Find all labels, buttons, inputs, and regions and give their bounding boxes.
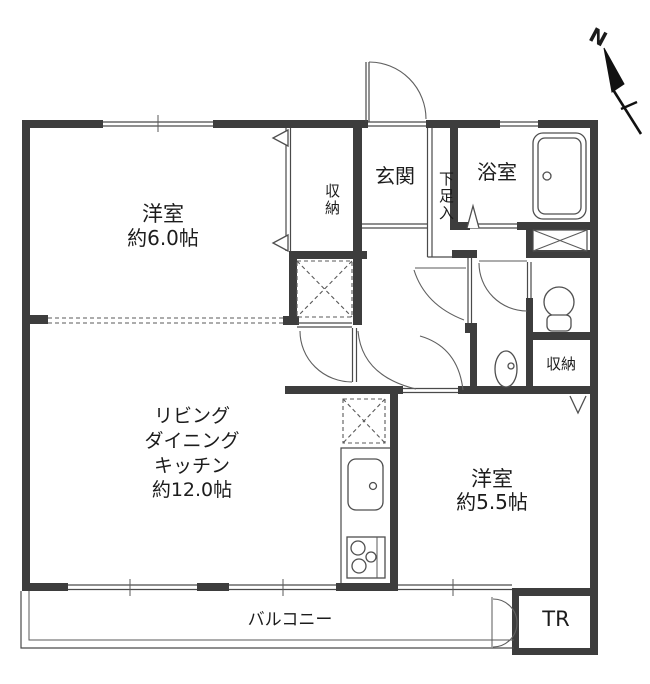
- entrance-step: [362, 224, 427, 228]
- toilet: [544, 287, 574, 331]
- bedroom-west-label: 洋室: [103, 202, 223, 226]
- closet-east-label: 収納: [531, 356, 591, 373]
- balcony-label: バルコニー: [238, 611, 342, 631]
- shoe-cabinet-label: 下足入: [431, 158, 453, 234]
- washing-machine-space: [533, 230, 587, 251]
- ldk-door: [297, 323, 357, 382]
- interior-walls: [22, 120, 598, 655]
- trunk-room-label: TR: [519, 607, 593, 631]
- bedroom-east-size: 約5.5帖: [432, 491, 552, 514]
- washroom-door: [414, 258, 472, 323]
- kitchen-storage-space: [343, 399, 385, 443]
- ldk-label-line1: リビング: [122, 406, 262, 428]
- floor-plan-drawing: [0, 0, 650, 684]
- ldk-label-line3: キッチン: [122, 456, 262, 478]
- closet-west-label: 収納: [317, 175, 339, 225]
- entrance-door: [366, 62, 426, 122]
- ldk-label-line4: 約12.0帖: [122, 480, 262, 502]
- bathroom-label: 浴室: [466, 161, 528, 184]
- closet-east-folding-door: [570, 396, 586, 413]
- refrigerator-space: [297, 261, 352, 317]
- bedroom-east-label: 洋室: [432, 467, 552, 491]
- closet-west-folding-door: [273, 128, 291, 251]
- washbasin: [495, 351, 517, 387]
- north-arrow-icon: [604, 48, 641, 134]
- bedroom-west-size: 約6.0帖: [103, 227, 223, 250]
- gas-stove: [347, 537, 385, 578]
- windows: [68, 115, 538, 596]
- entrance-label: 玄関: [364, 165, 426, 188]
- bathroom-folding-door: [467, 206, 517, 228]
- toilet-door: [479, 261, 531, 311]
- floor-plan: 洋室 約6.0帖 リビング ダイニング キッチン 約12.0帖 洋室 約5.5帖…: [0, 0, 650, 684]
- bathtub: [533, 133, 586, 219]
- ldk-label-line2: ダイニング: [122, 431, 262, 453]
- sliding-partition: [48, 318, 283, 323]
- kitchen-sink: [348, 459, 383, 510]
- hall-doors: [358, 331, 463, 393]
